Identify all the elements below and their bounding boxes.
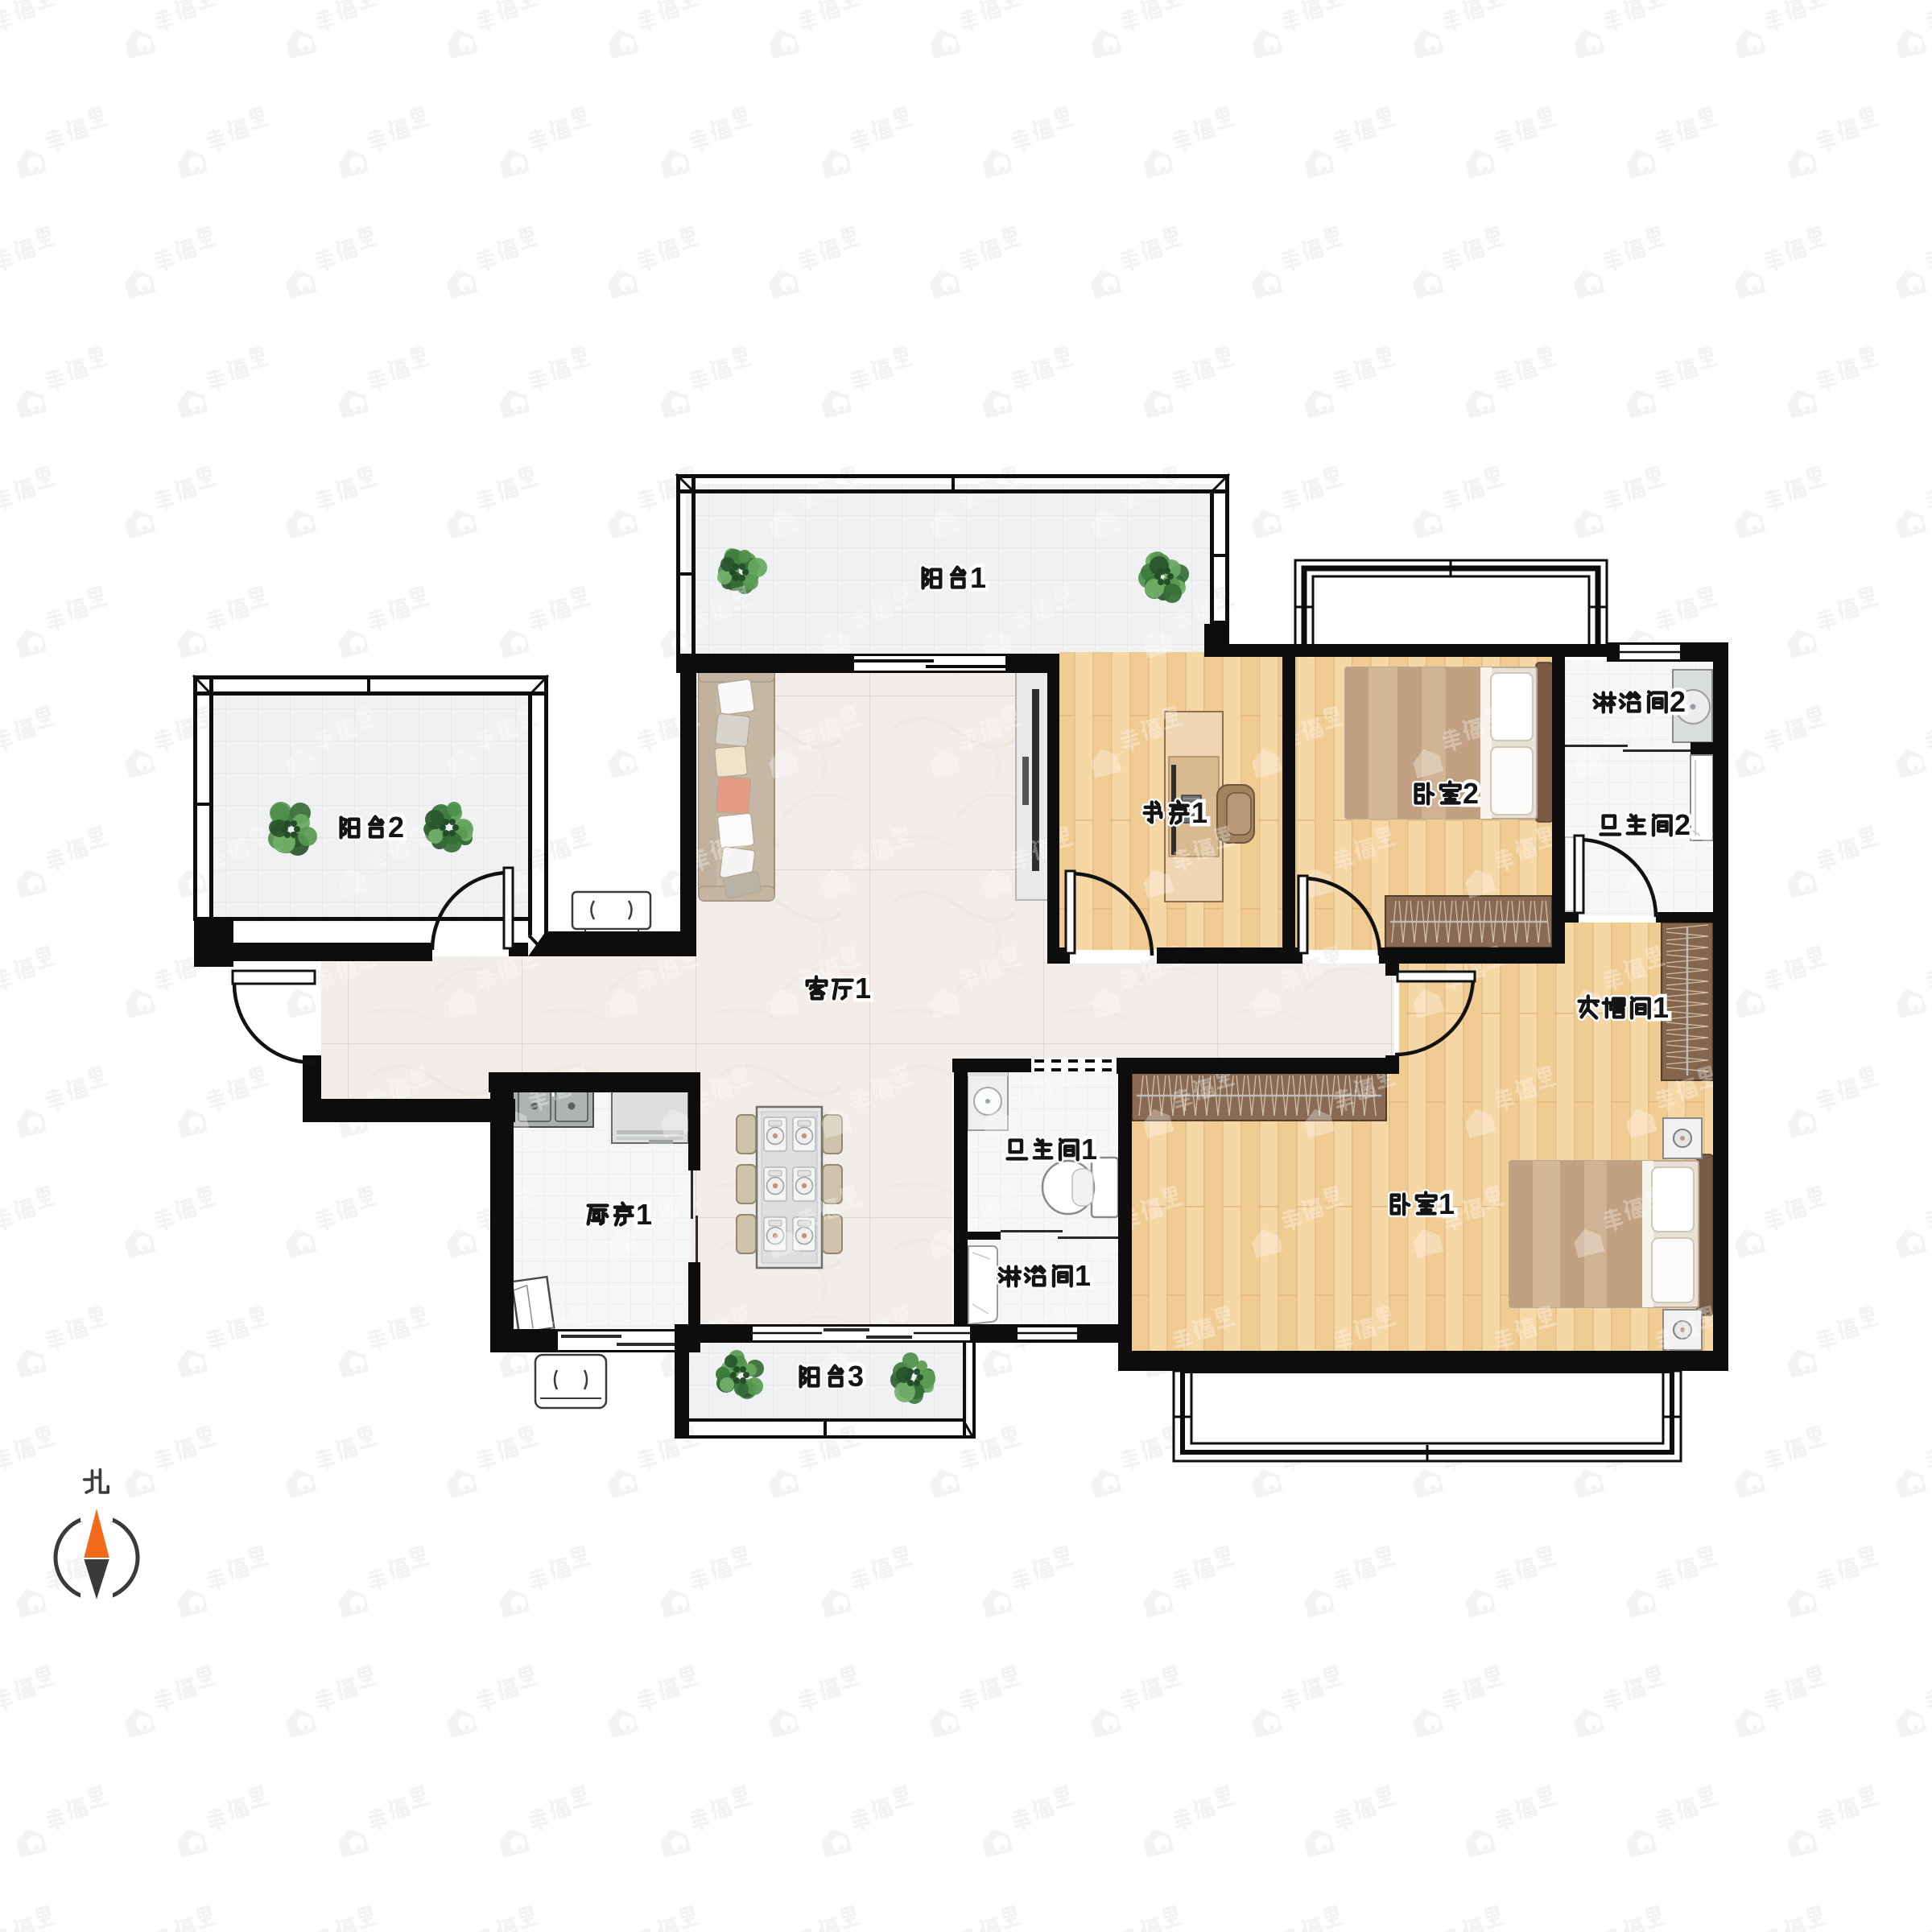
svg-text:1: 1 (1653, 991, 1669, 1024)
svg-text:1: 1 (1081, 1133, 1097, 1166)
svg-text:2: 2 (388, 811, 404, 844)
svg-text:1: 1 (636, 1198, 652, 1231)
svg-text:1: 1 (970, 561, 986, 594)
svg-text:1: 1 (1191, 796, 1207, 829)
svg-text:2: 2 (1463, 777, 1479, 810)
svg-text:3: 3 (848, 1360, 864, 1393)
svg-text:2: 2 (1674, 808, 1690, 841)
svg-text:1: 1 (1439, 1187, 1455, 1220)
svg-text:1: 1 (855, 972, 871, 1005)
svg-text:1: 1 (1075, 1259, 1091, 1292)
svg-text:2: 2 (1670, 685, 1686, 718)
